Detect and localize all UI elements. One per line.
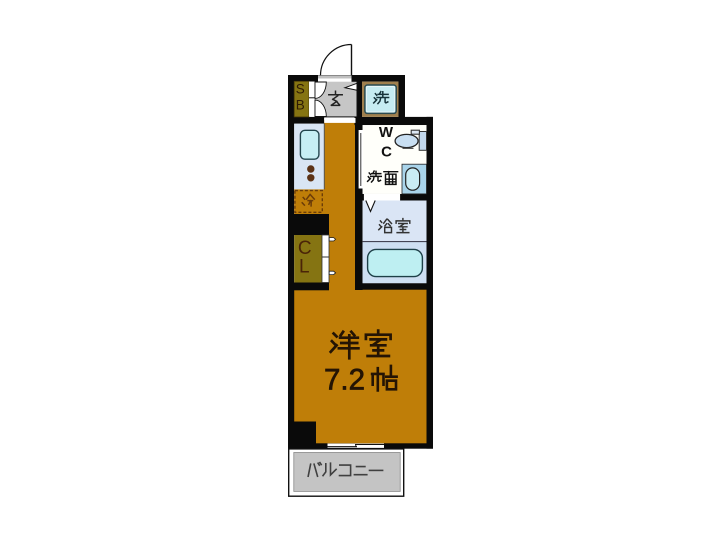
svg-text:S: S — [296, 81, 305, 96]
svg-text:W: W — [379, 124, 394, 141]
svg-text:B: B — [296, 97, 305, 112]
svg-text:L: L — [299, 256, 310, 277]
svg-text:C: C — [381, 144, 392, 161]
svg-text:7.2: 7.2 — [324, 364, 365, 397]
